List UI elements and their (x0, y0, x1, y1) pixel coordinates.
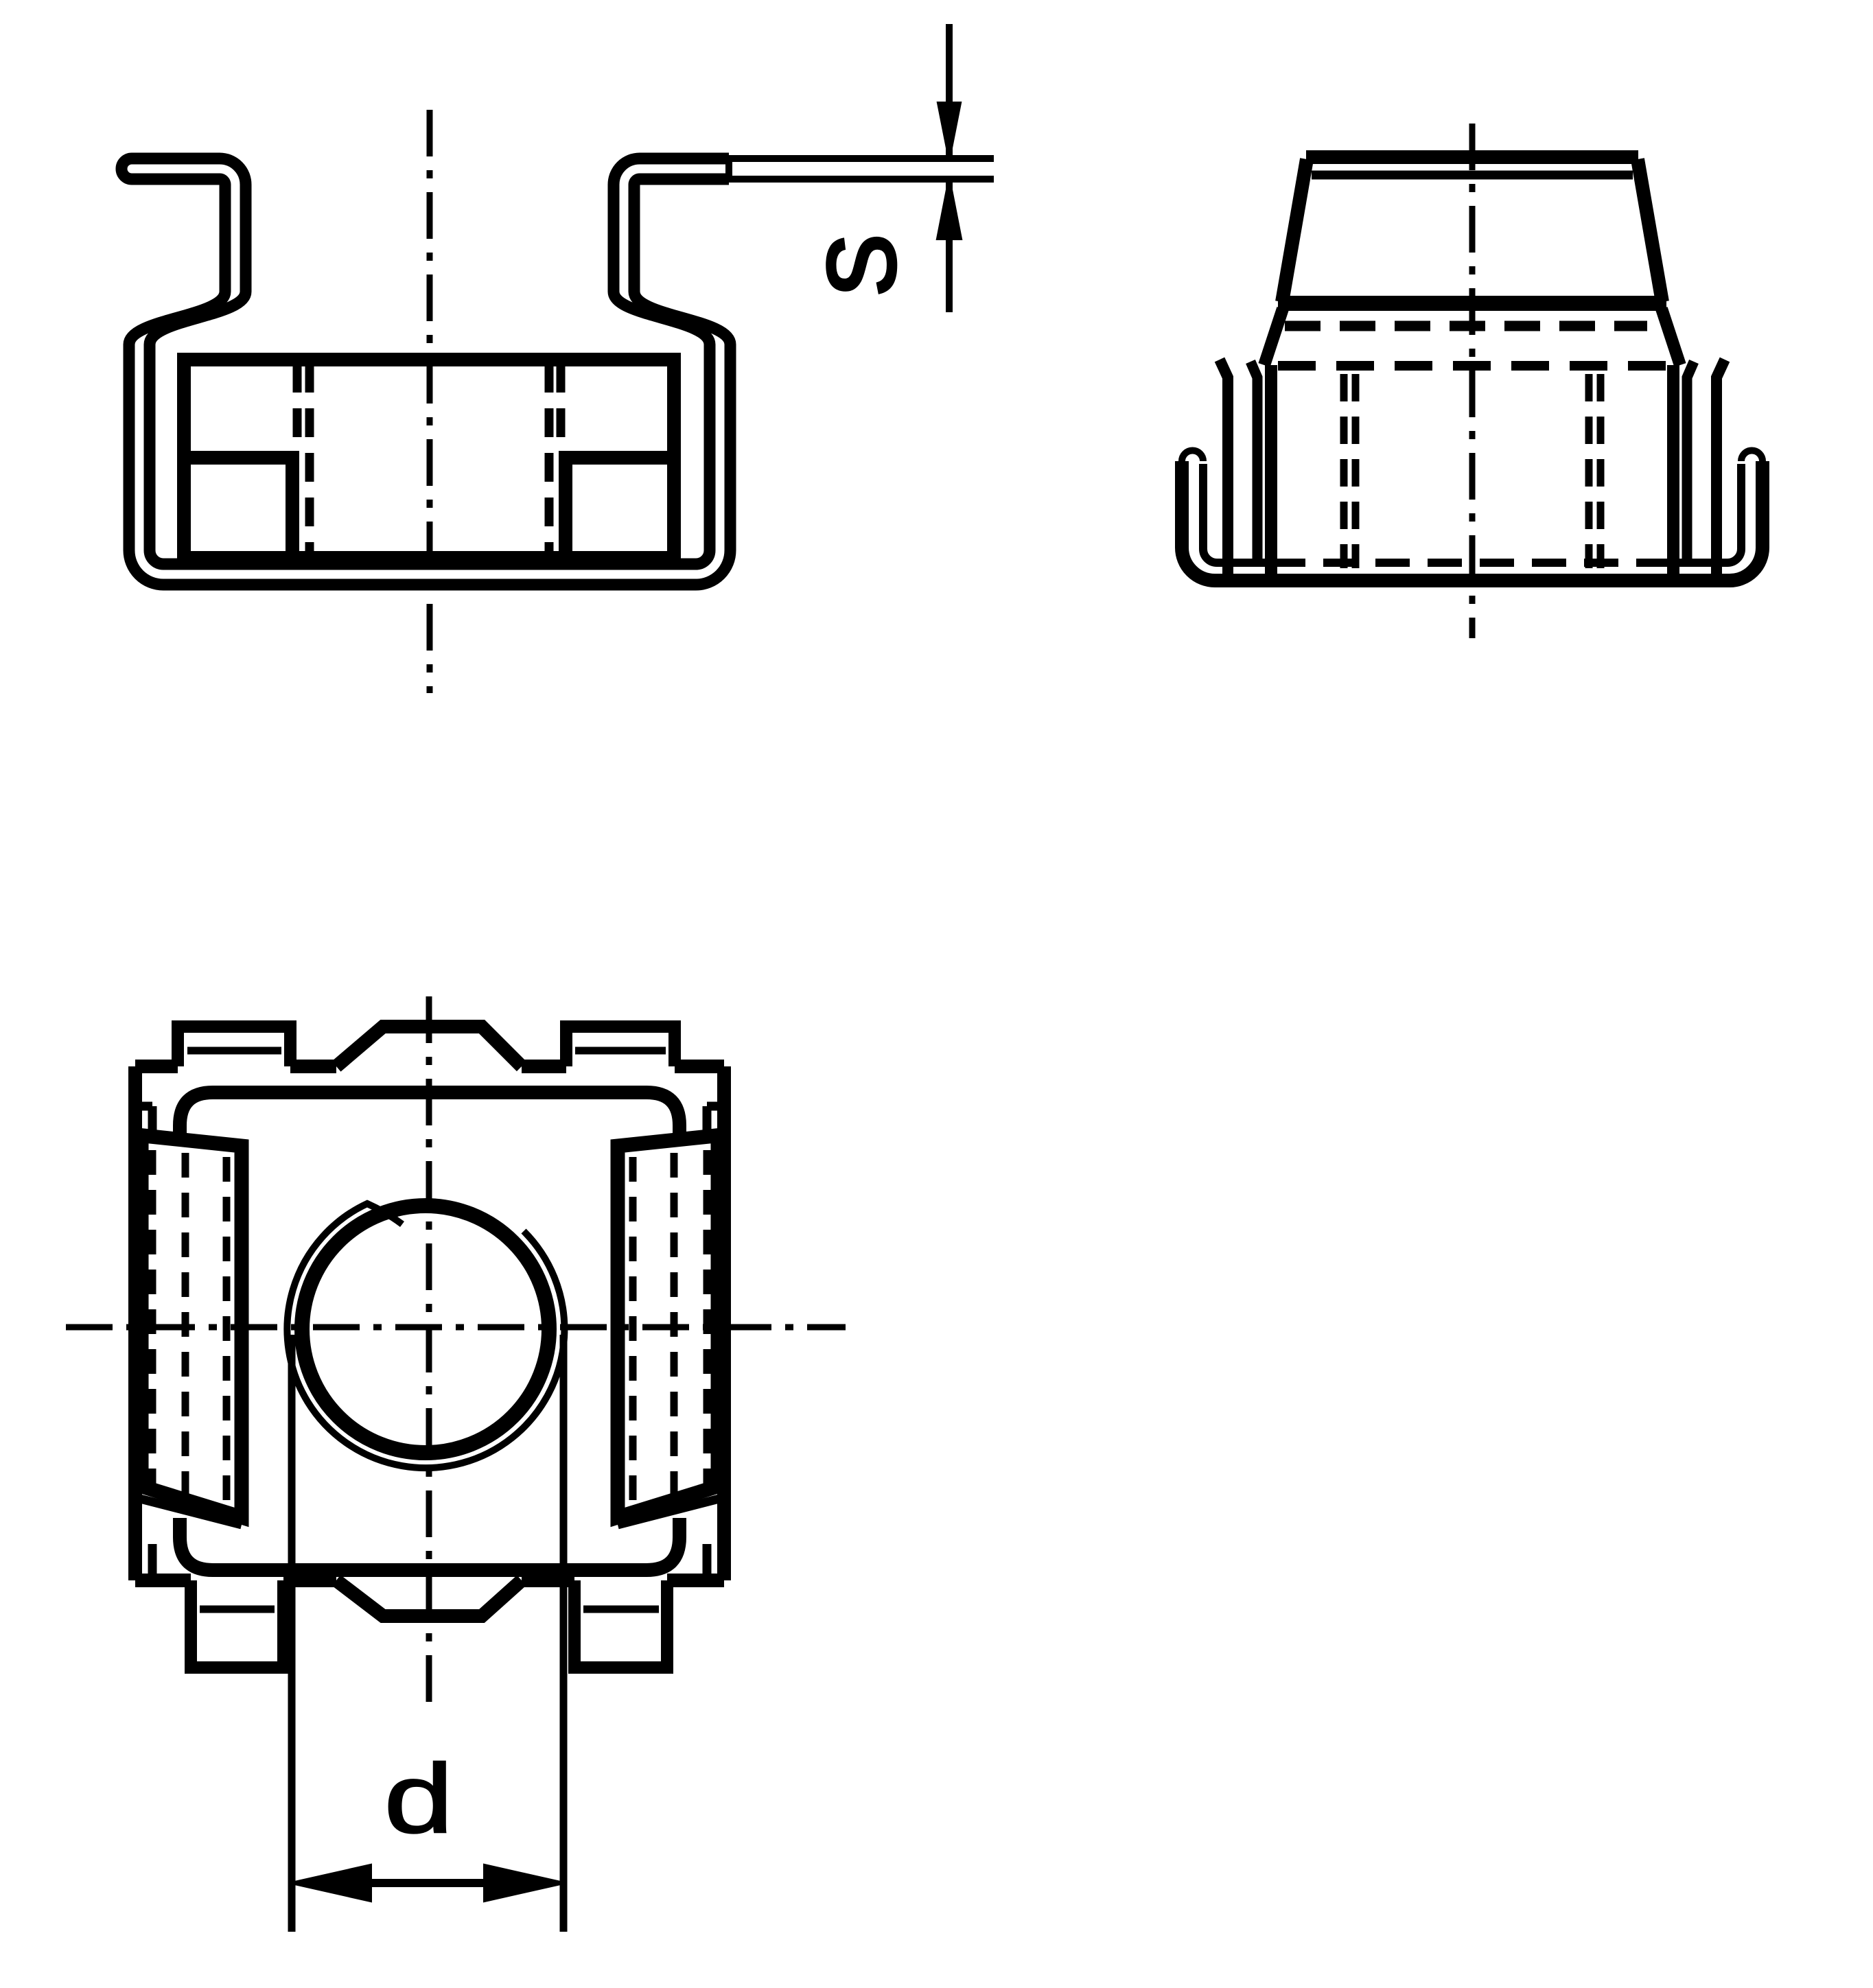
svg-text:d: d (384, 1744, 454, 1853)
svg-text:s: s (781, 233, 922, 297)
